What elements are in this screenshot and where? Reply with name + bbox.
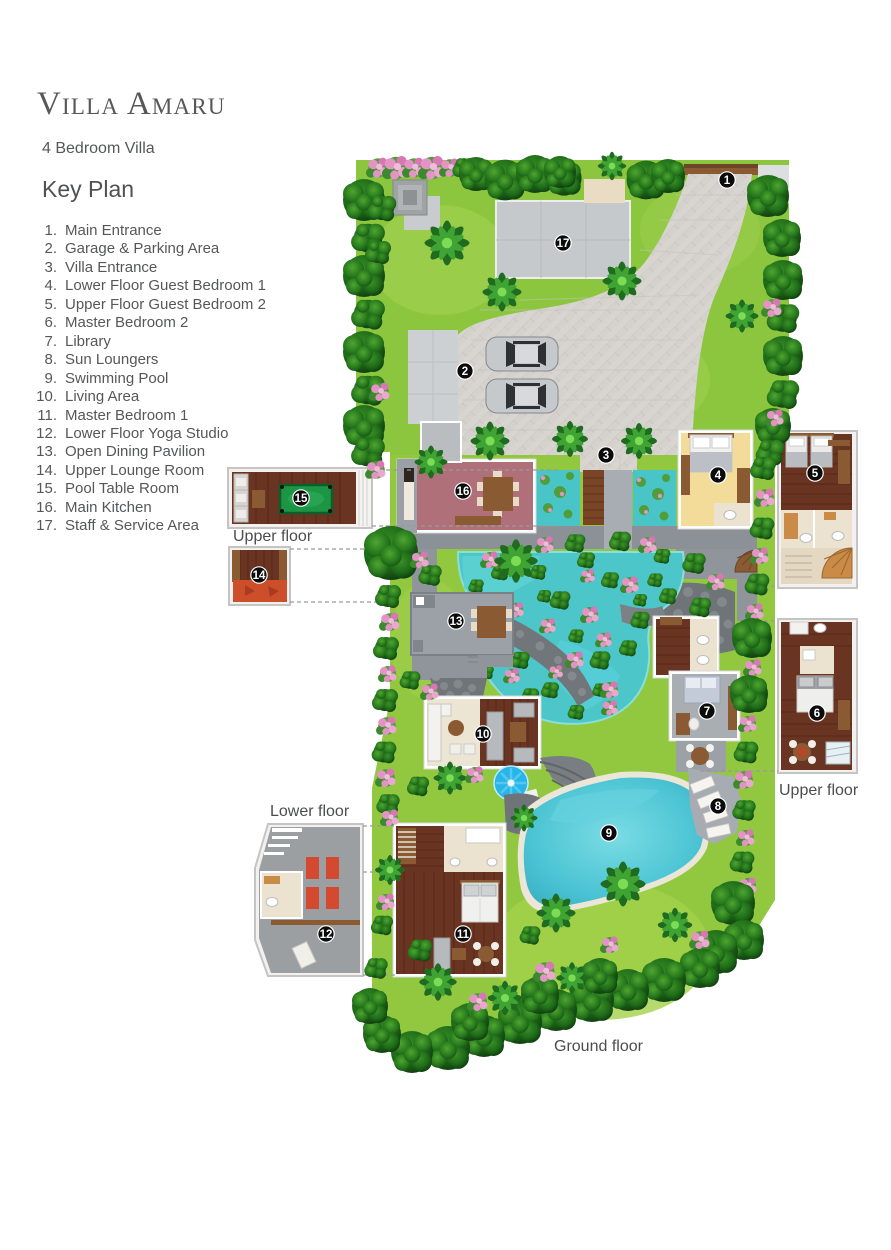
svg-text:17: 17 — [557, 238, 570, 250]
svg-text:7: 7 — [704, 706, 710, 718]
svg-text:16: 16 — [457, 486, 470, 498]
svg-text:13: 13 — [450, 616, 463, 628]
svg-text:3: 3 — [603, 450, 609, 462]
svg-text:15: 15 — [295, 493, 308, 505]
svg-text:11: 11 — [457, 929, 470, 941]
svg-text:5: 5 — [812, 468, 819, 480]
svg-text:12: 12 — [320, 929, 333, 941]
svg-text:8: 8 — [715, 801, 722, 813]
svg-text:2: 2 — [462, 366, 468, 378]
svg-text:6: 6 — [814, 708, 820, 720]
svg-text:14: 14 — [253, 570, 266, 582]
svg-text:9: 9 — [606, 828, 612, 840]
svg-text:10: 10 — [477, 729, 490, 741]
svg-text:4: 4 — [715, 470, 722, 482]
svg-text:1: 1 — [724, 175, 731, 187]
